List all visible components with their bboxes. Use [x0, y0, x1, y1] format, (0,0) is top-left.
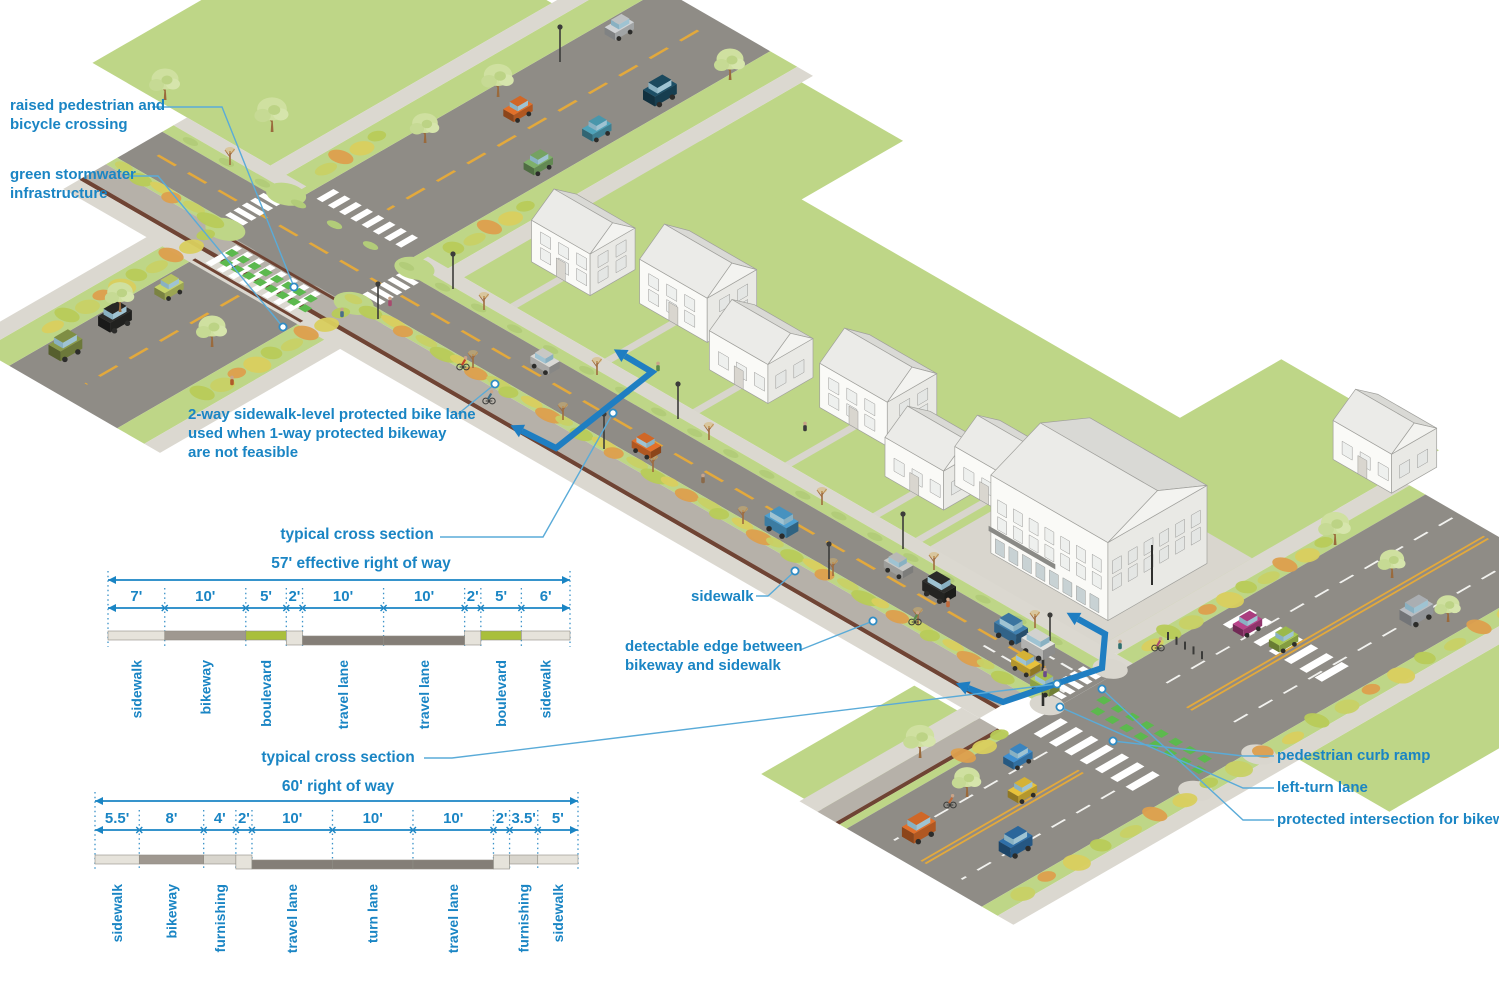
cross-section-57: typical cross section57' effective right… — [108, 526, 570, 729]
label-text: protected intersection for bikeway — [1277, 811, 1499, 828]
dimension-value: 8' — [166, 810, 178, 827]
pedestrian — [946, 598, 950, 608]
leader-dot — [491, 380, 498, 387]
dimension-value: 7' — [130, 588, 142, 605]
leader-dot — [1053, 680, 1060, 687]
leader-dot — [279, 323, 286, 330]
leader-dot — [290, 283, 297, 290]
pedestrian — [656, 362, 660, 372]
lane-label: bikeway — [163, 884, 179, 939]
dimension-value: 5' — [495, 588, 507, 605]
label-text: 2-way sidewalk-level protected bike lane — [188, 406, 476, 423]
label-text: left-turn lane — [1277, 779, 1368, 796]
dimension-value: 5.5' — [105, 810, 129, 827]
label-text: bicycle crossing — [10, 116, 128, 133]
pedestrian — [803, 422, 807, 432]
label-text: detectable edge between — [625, 638, 803, 655]
lane-label: sidewalk — [538, 660, 554, 719]
dimension-value: 10' — [363, 810, 383, 827]
section-title: typical cross section — [261, 749, 414, 766]
dimension-value: 4' — [214, 810, 226, 827]
lane-label: sidewalk — [128, 660, 144, 719]
section-title: typical cross section — [280, 526, 433, 543]
pedestrian — [340, 308, 344, 318]
lane-label: travel lane — [416, 660, 432, 729]
dimension-value: 2' — [238, 810, 250, 827]
lane-label: travel lane — [335, 660, 351, 729]
lane-label: sidewalk — [550, 884, 566, 943]
pedestrian — [230, 376, 234, 386]
pedestrian — [388, 297, 392, 307]
section-row-label: 60' right of way — [282, 778, 395, 795]
isometric-street-illustration: typical cross section57' effective right… — [0, 0, 1499, 1001]
dimension-value: 6' — [540, 588, 552, 605]
street-design-infographic: typical cross section57' effective right… — [0, 0, 1499, 1001]
lane-label: travel lane — [445, 884, 461, 953]
label-sidewalk: sidewalk — [691, 588, 754, 607]
dimension-value: 2' — [467, 588, 479, 605]
label-text: used when 1-way protected bikeway — [188, 425, 446, 442]
label-text: sidewalk — [691, 588, 754, 605]
pedestrian — [1118, 640, 1122, 650]
leader-dot — [609, 409, 616, 416]
dimension-value: 5' — [260, 588, 272, 605]
cross-section-60: typical cross section60' right of way5.5… — [95, 749, 578, 953]
dimension-value: 5' — [552, 810, 564, 827]
dimension-value: 10' — [443, 810, 463, 827]
leader-dot — [1109, 737, 1116, 744]
label-text: infrastructure — [10, 185, 108, 202]
ground — [0, 0, 1499, 987]
dimension-value: 2' — [288, 588, 300, 605]
label-text: are not feasible — [188, 444, 298, 461]
lane-label: boulevard — [258, 660, 274, 727]
lane-label: travel lane — [284, 884, 300, 953]
leader-dot — [1098, 685, 1105, 692]
label-raised-crossing: raised pedestrian and bicycle crossing — [10, 97, 200, 135]
label-pedestrian-curb-ramp: pedestrian curb ramp — [1277, 747, 1430, 766]
label-left-turn-lane: left-turn lane — [1277, 779, 1368, 798]
lane-label: furnishing — [212, 884, 228, 952]
label-text: green stormwater — [10, 166, 136, 183]
pedestrian — [701, 474, 705, 484]
dimension-value: 3.5' — [511, 810, 535, 827]
section-row-label: 57' effective right of way — [271, 555, 451, 572]
lane-label: bikeway — [197, 660, 213, 715]
label-text: pedestrian curb ramp — [1277, 747, 1430, 764]
label-bike-lane-note: 2-way sidewalk-level protected bike lane… — [188, 406, 518, 463]
leader-dot — [869, 617, 876, 624]
lane-label: turn lane — [365, 884, 381, 943]
lane-label: furnishing — [516, 884, 532, 952]
dimension-value: 10' — [414, 588, 434, 605]
label-text: raised pedestrian and — [10, 97, 165, 114]
lane-label: sidewalk — [109, 884, 125, 943]
label-protected-intersection: protected intersection for bikeway — [1277, 811, 1499, 830]
dimension-value: 2' — [496, 810, 508, 827]
lane-label: boulevard — [493, 660, 509, 727]
leader-dot — [791, 567, 798, 574]
dimension-value: 10' — [195, 588, 215, 605]
label-green-stormwater: green stormwater infrastructure — [10, 166, 200, 204]
leader-dot — [1056, 703, 1063, 710]
dimension-value: 10' — [282, 810, 302, 827]
dimension-value: 10' — [333, 588, 353, 605]
label-detectable-edge: detectable edge between bikeway and side… — [625, 638, 845, 676]
pedestrian — [1043, 668, 1047, 678]
label-text: bikeway and sidewalk — [625, 657, 781, 674]
